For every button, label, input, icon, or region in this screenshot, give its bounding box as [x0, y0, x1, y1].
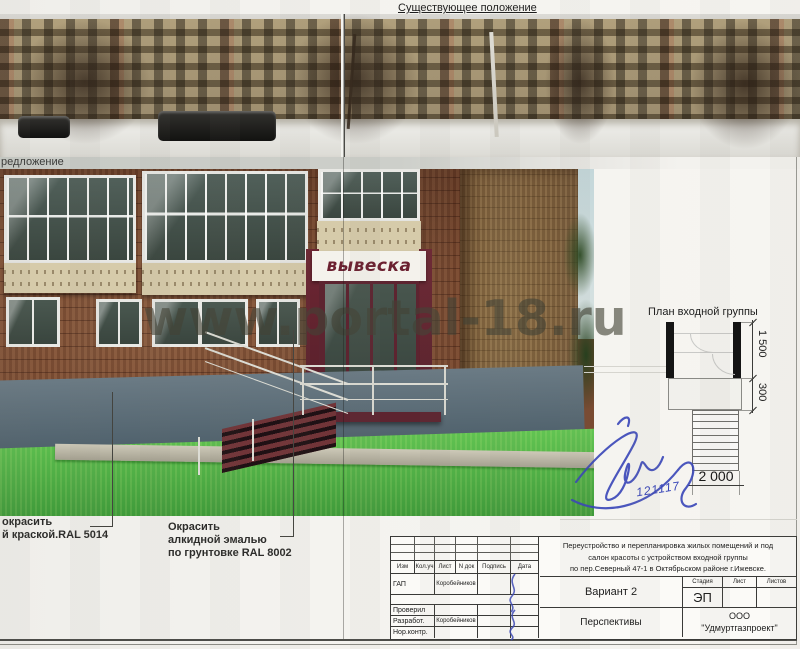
plan-vestibule-line: [674, 352, 733, 353]
revision-rows: [391, 537, 538, 560]
sheet-bottom-frame-2: [0, 644, 797, 645]
plan-ext-line: [584, 372, 668, 373]
paint-note-line: алкидной эмалью: [168, 534, 292, 547]
paint-note-line: по грунтовке RAL 8002: [168, 547, 292, 560]
parked-car: [18, 116, 70, 138]
railing: [300, 383, 448, 385]
title-block: Изм Кол.уч Лист N док Подпись Дата ГАП К…: [390, 536, 797, 640]
existing-situation-title: Существующее положение: [398, 2, 537, 14]
sheet-value: [723, 588, 757, 607]
leader-line: [90, 526, 112, 527]
paint-note-line: й краской.RAL 5014: [2, 529, 108, 542]
railing: [300, 399, 448, 400]
paint-note-ral5014: окрасить й краской.RAL 5014: [2, 516, 108, 542]
plan-door-swing: [712, 354, 735, 375]
paint-note-ral8002: Окрасить алкидной эмалью по грунтовке RA…: [168, 521, 292, 560]
leader-line: [293, 330, 294, 537]
company-line: ООО: [729, 611, 750, 622]
plan-dim-line-v: [752, 320, 753, 413]
drawing-sheet: Существующее положение редложение вывеск…: [0, 0, 800, 649]
stage-label: Стадия: [683, 577, 723, 587]
railing-post: [444, 365, 446, 415]
ground-floor-window: [6, 297, 60, 347]
plan-platform: [668, 378, 742, 410]
sheet-label: Лист: [723, 577, 757, 587]
railing-post: [198, 437, 200, 475]
entrance-plan-title: План входной группы: [648, 306, 758, 318]
company-line: "Удмуртгазпроект": [701, 623, 777, 634]
parked-car: [158, 111, 276, 141]
role-gap: ГАП: [391, 574, 435, 594]
entrance-stone-band: [317, 221, 421, 251]
railing: [300, 365, 448, 367]
variant-cell: Вариант 2: [540, 577, 683, 607]
dim-300: 300: [756, 383, 768, 401]
shop-signboard: вывеска: [312, 251, 426, 281]
col-list: Лист: [435, 561, 456, 573]
name-korobeynikov: Коробейников: [435, 574, 478, 594]
balcony-glazing: [4, 175, 136, 263]
stage-value: ЭП: [683, 588, 723, 607]
sheets-label: Листов: [757, 577, 796, 587]
paint-note-line: Окрасить: [168, 521, 292, 534]
page-fold-line: [343, 14, 344, 639]
balcony-panel: [4, 263, 136, 293]
project-line: Переустройство и перепланировка жилых по…: [540, 540, 796, 552]
role-razrabot: Разработ.: [391, 616, 435, 626]
stage-table: Стадия Лист Листов ЭП: [683, 577, 796, 607]
paint-note-line: окрасить: [2, 516, 108, 529]
watermark: www.portal-18.ru: [143, 290, 627, 347]
balcony-glazing: [142, 171, 308, 263]
role-norkontr: Нор.контр.: [391, 627, 435, 638]
tree-silhouette: [690, 19, 800, 149]
title-block-right: Переустройство и перепланировка жилых по…: [540, 537, 796, 639]
col-koluch: Кол.уч: [415, 561, 435, 573]
table-signature-ink: [503, 608, 523, 642]
name-cell: [435, 605, 478, 615]
entrance-upper-glazing: [318, 169, 420, 221]
leader-line: [112, 392, 113, 527]
view-name-cell: Перспективы: [540, 608, 683, 637]
tree-silhouette: [545, 19, 615, 144]
plan-wall-left: [666, 322, 674, 378]
name-korobeynikov: Коробейников: [435, 616, 478, 626]
railing-post: [302, 365, 304, 415]
dim-1500: 1 500: [756, 330, 768, 358]
site-photo-panorama: [0, 14, 800, 157]
role-proveril: Проверил: [391, 605, 435, 615]
project-description: Переустройство и перепланировка жилых по…: [540, 537, 796, 577]
project-line: по пер.Северный 47-1 в Октябрьском район…: [540, 563, 796, 575]
name-cell: [435, 627, 478, 638]
handwritten-signature: [566, 412, 706, 520]
leader-line: [280, 536, 294, 537]
col-ndok: N док: [456, 561, 478, 573]
plan-ext-line: [584, 366, 668, 367]
proposal-label: редложение: [1, 156, 64, 168]
col-izm: Изм: [391, 561, 415, 573]
scan-band: [0, 157, 800, 169]
plan-door-swing: [690, 334, 713, 353]
railing-post: [372, 365, 374, 415]
sheets-value: [757, 588, 796, 607]
ground-floor-window: [96, 299, 142, 347]
railing-post: [252, 419, 254, 461]
project-line: салон красоты с устройством входной груп…: [540, 552, 796, 564]
company-cell: ООО "Удмуртгазпроект": [683, 608, 796, 637]
